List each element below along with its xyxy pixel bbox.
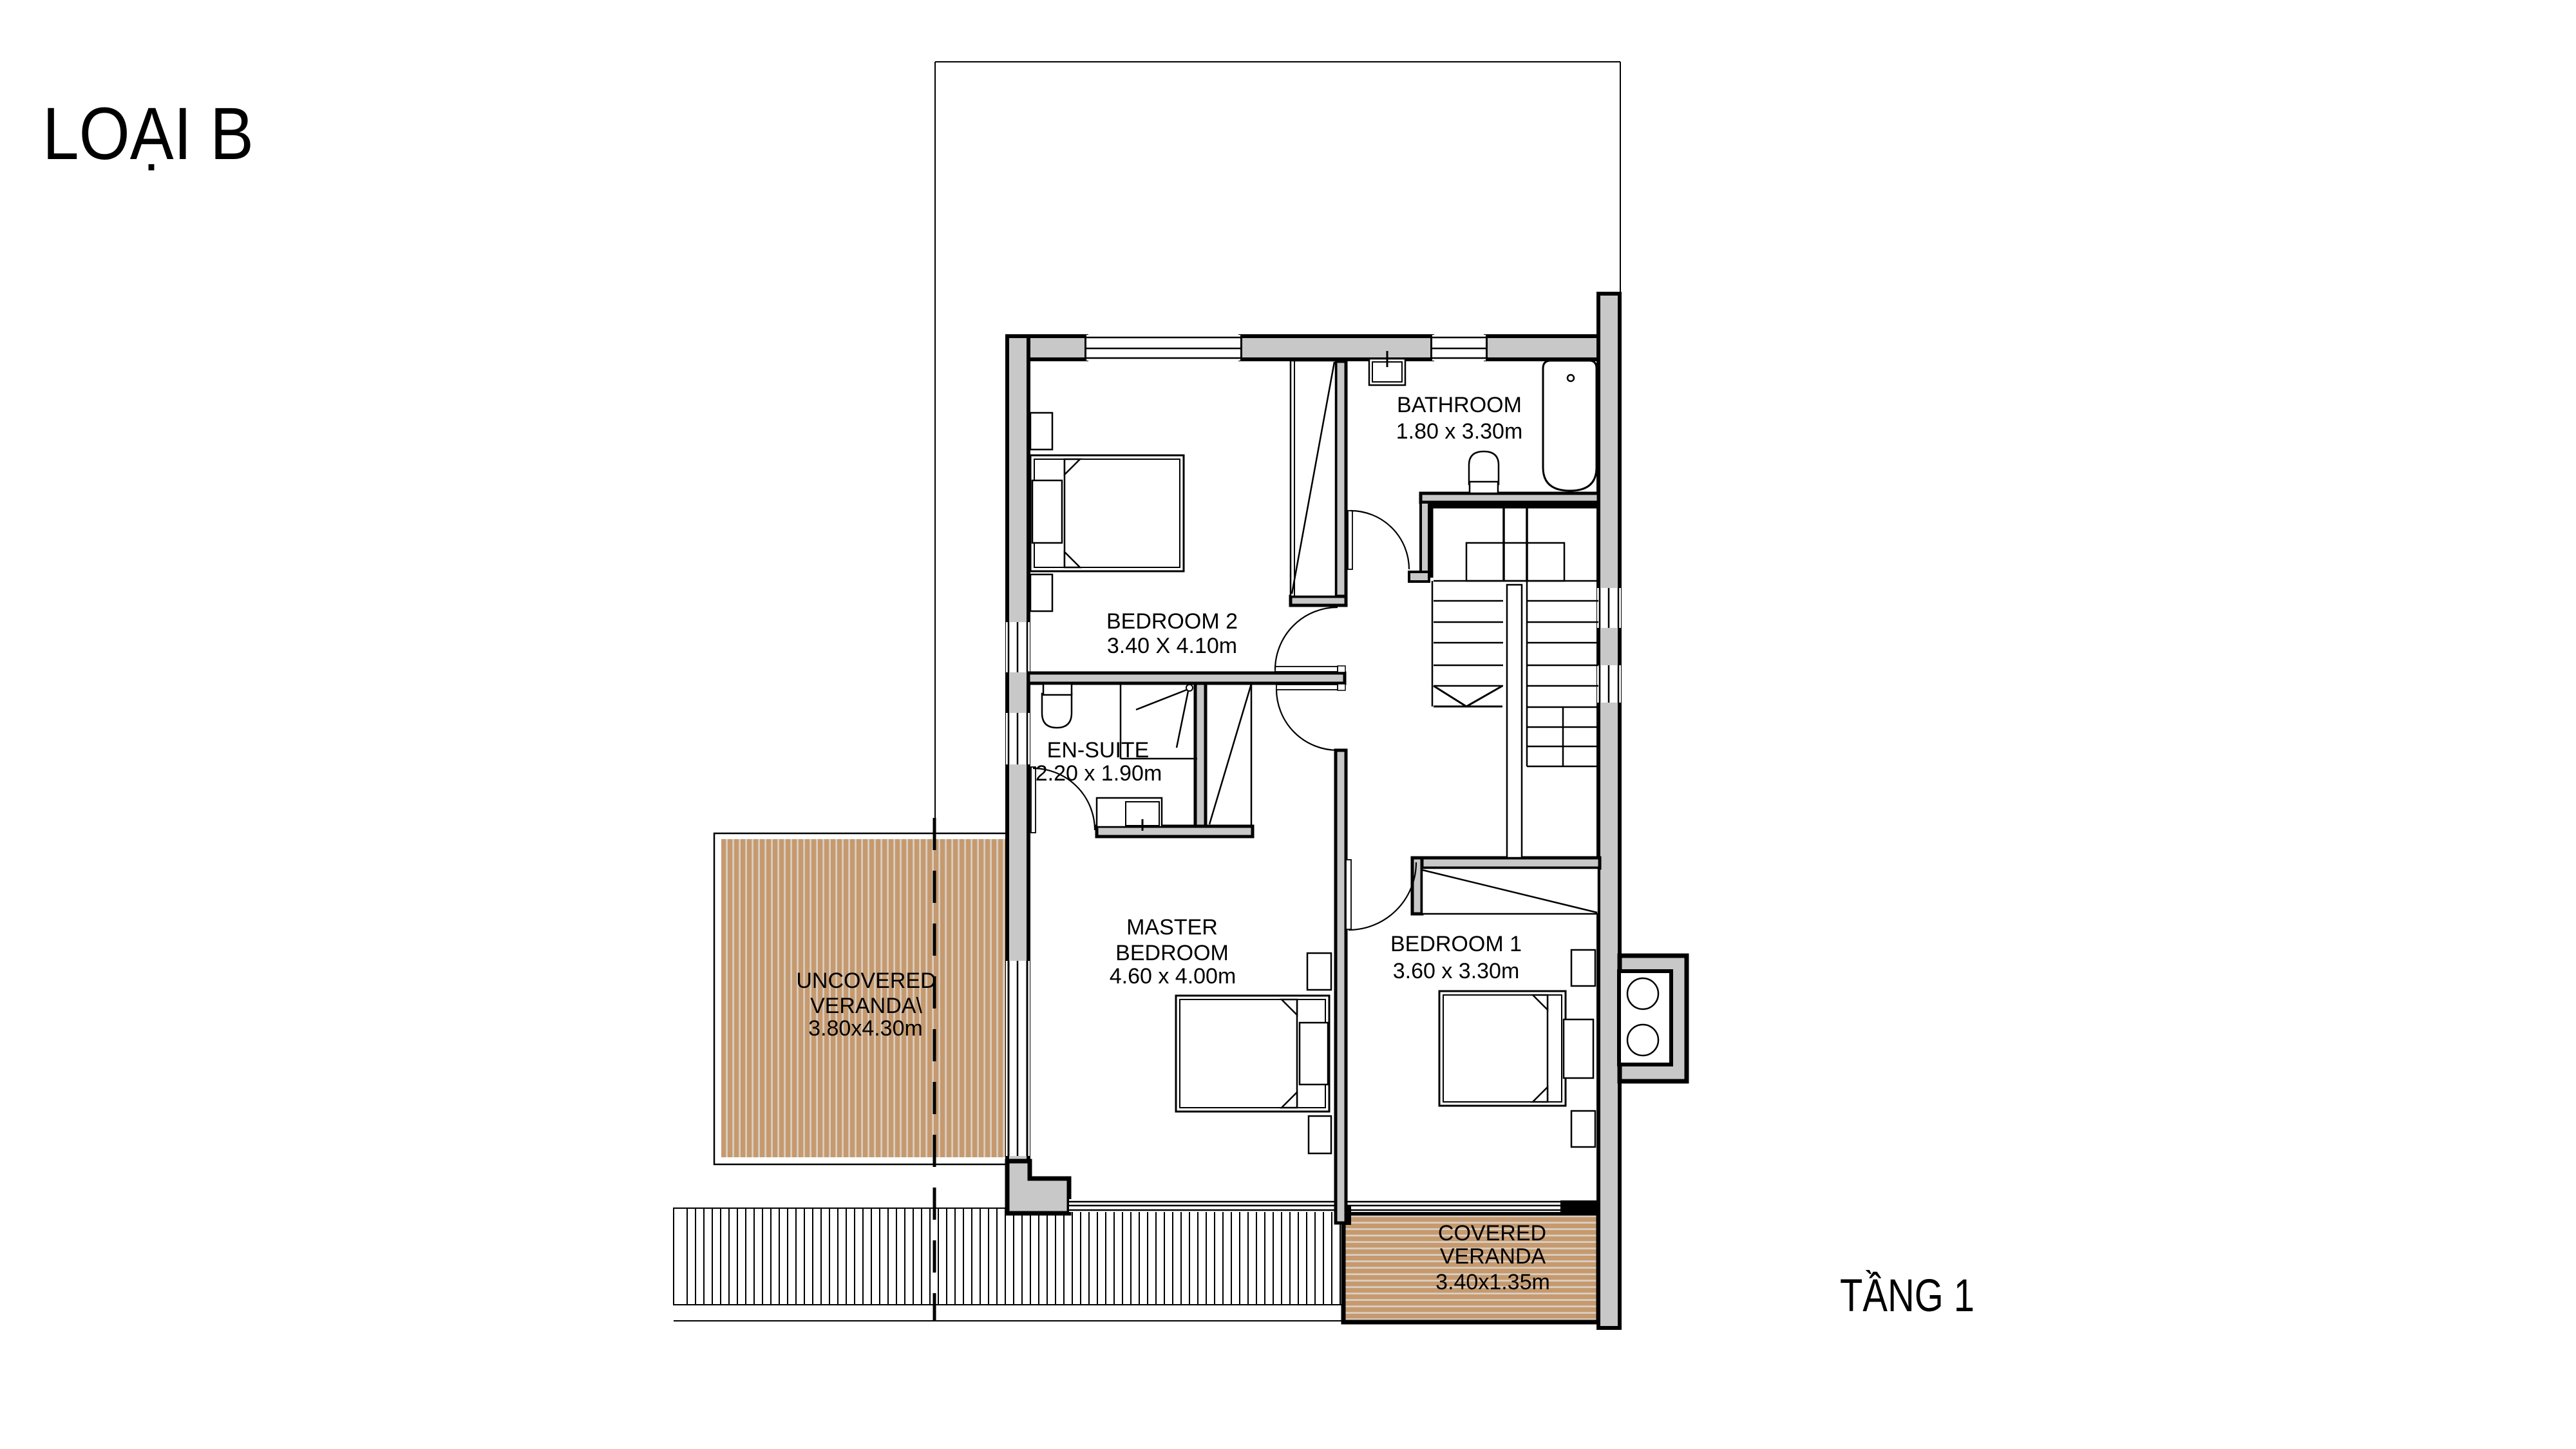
- svg-text:3.40x1.35m: 3.40x1.35m: [1435, 1270, 1550, 1294]
- svg-text:VERANDA: VERANDA: [1440, 1244, 1546, 1269]
- svg-text:BEDROOM: BEDROOM: [1115, 941, 1229, 965]
- svg-text:TẦNG 1: TẦNG 1: [1840, 1271, 1975, 1321]
- svg-text:4.60 x 4.00m: 4.60 x 4.00m: [1110, 964, 1236, 989]
- svg-text:BATHROOM: BATHROOM: [1397, 393, 1522, 417]
- svg-text:UNCOVERED: UNCOVERED: [796, 969, 936, 993]
- svg-text:LOẠI B: LOẠI B: [43, 93, 254, 175]
- svg-text:EN-SUITE: EN-SUITE: [1047, 738, 1150, 762]
- svg-text:3.40 X 4.10m: 3.40 X 4.10m: [1107, 634, 1237, 658]
- svg-text:3.80x4.30m: 3.80x4.30m: [808, 1016, 923, 1041]
- svg-text:BEDROOM 2: BEDROOM 2: [1106, 609, 1238, 634]
- svg-text:VERANDA\: VERANDA\: [810, 994, 922, 1018]
- svg-text:COVERED: COVERED: [1438, 1221, 1546, 1245]
- svg-text:BEDROOM 1: BEDROOM 1: [1390, 932, 1522, 956]
- svg-text:MASTER: MASTER: [1126, 915, 1218, 940]
- svg-text:1.80 x 3.30m: 1.80 x 3.30m: [1396, 419, 1523, 444]
- svg-text:3.60 x 3.30m: 3.60 x 3.30m: [1393, 959, 1520, 983]
- svg-text:2.20 x 1.90m: 2.20 x 1.90m: [1036, 761, 1162, 786]
